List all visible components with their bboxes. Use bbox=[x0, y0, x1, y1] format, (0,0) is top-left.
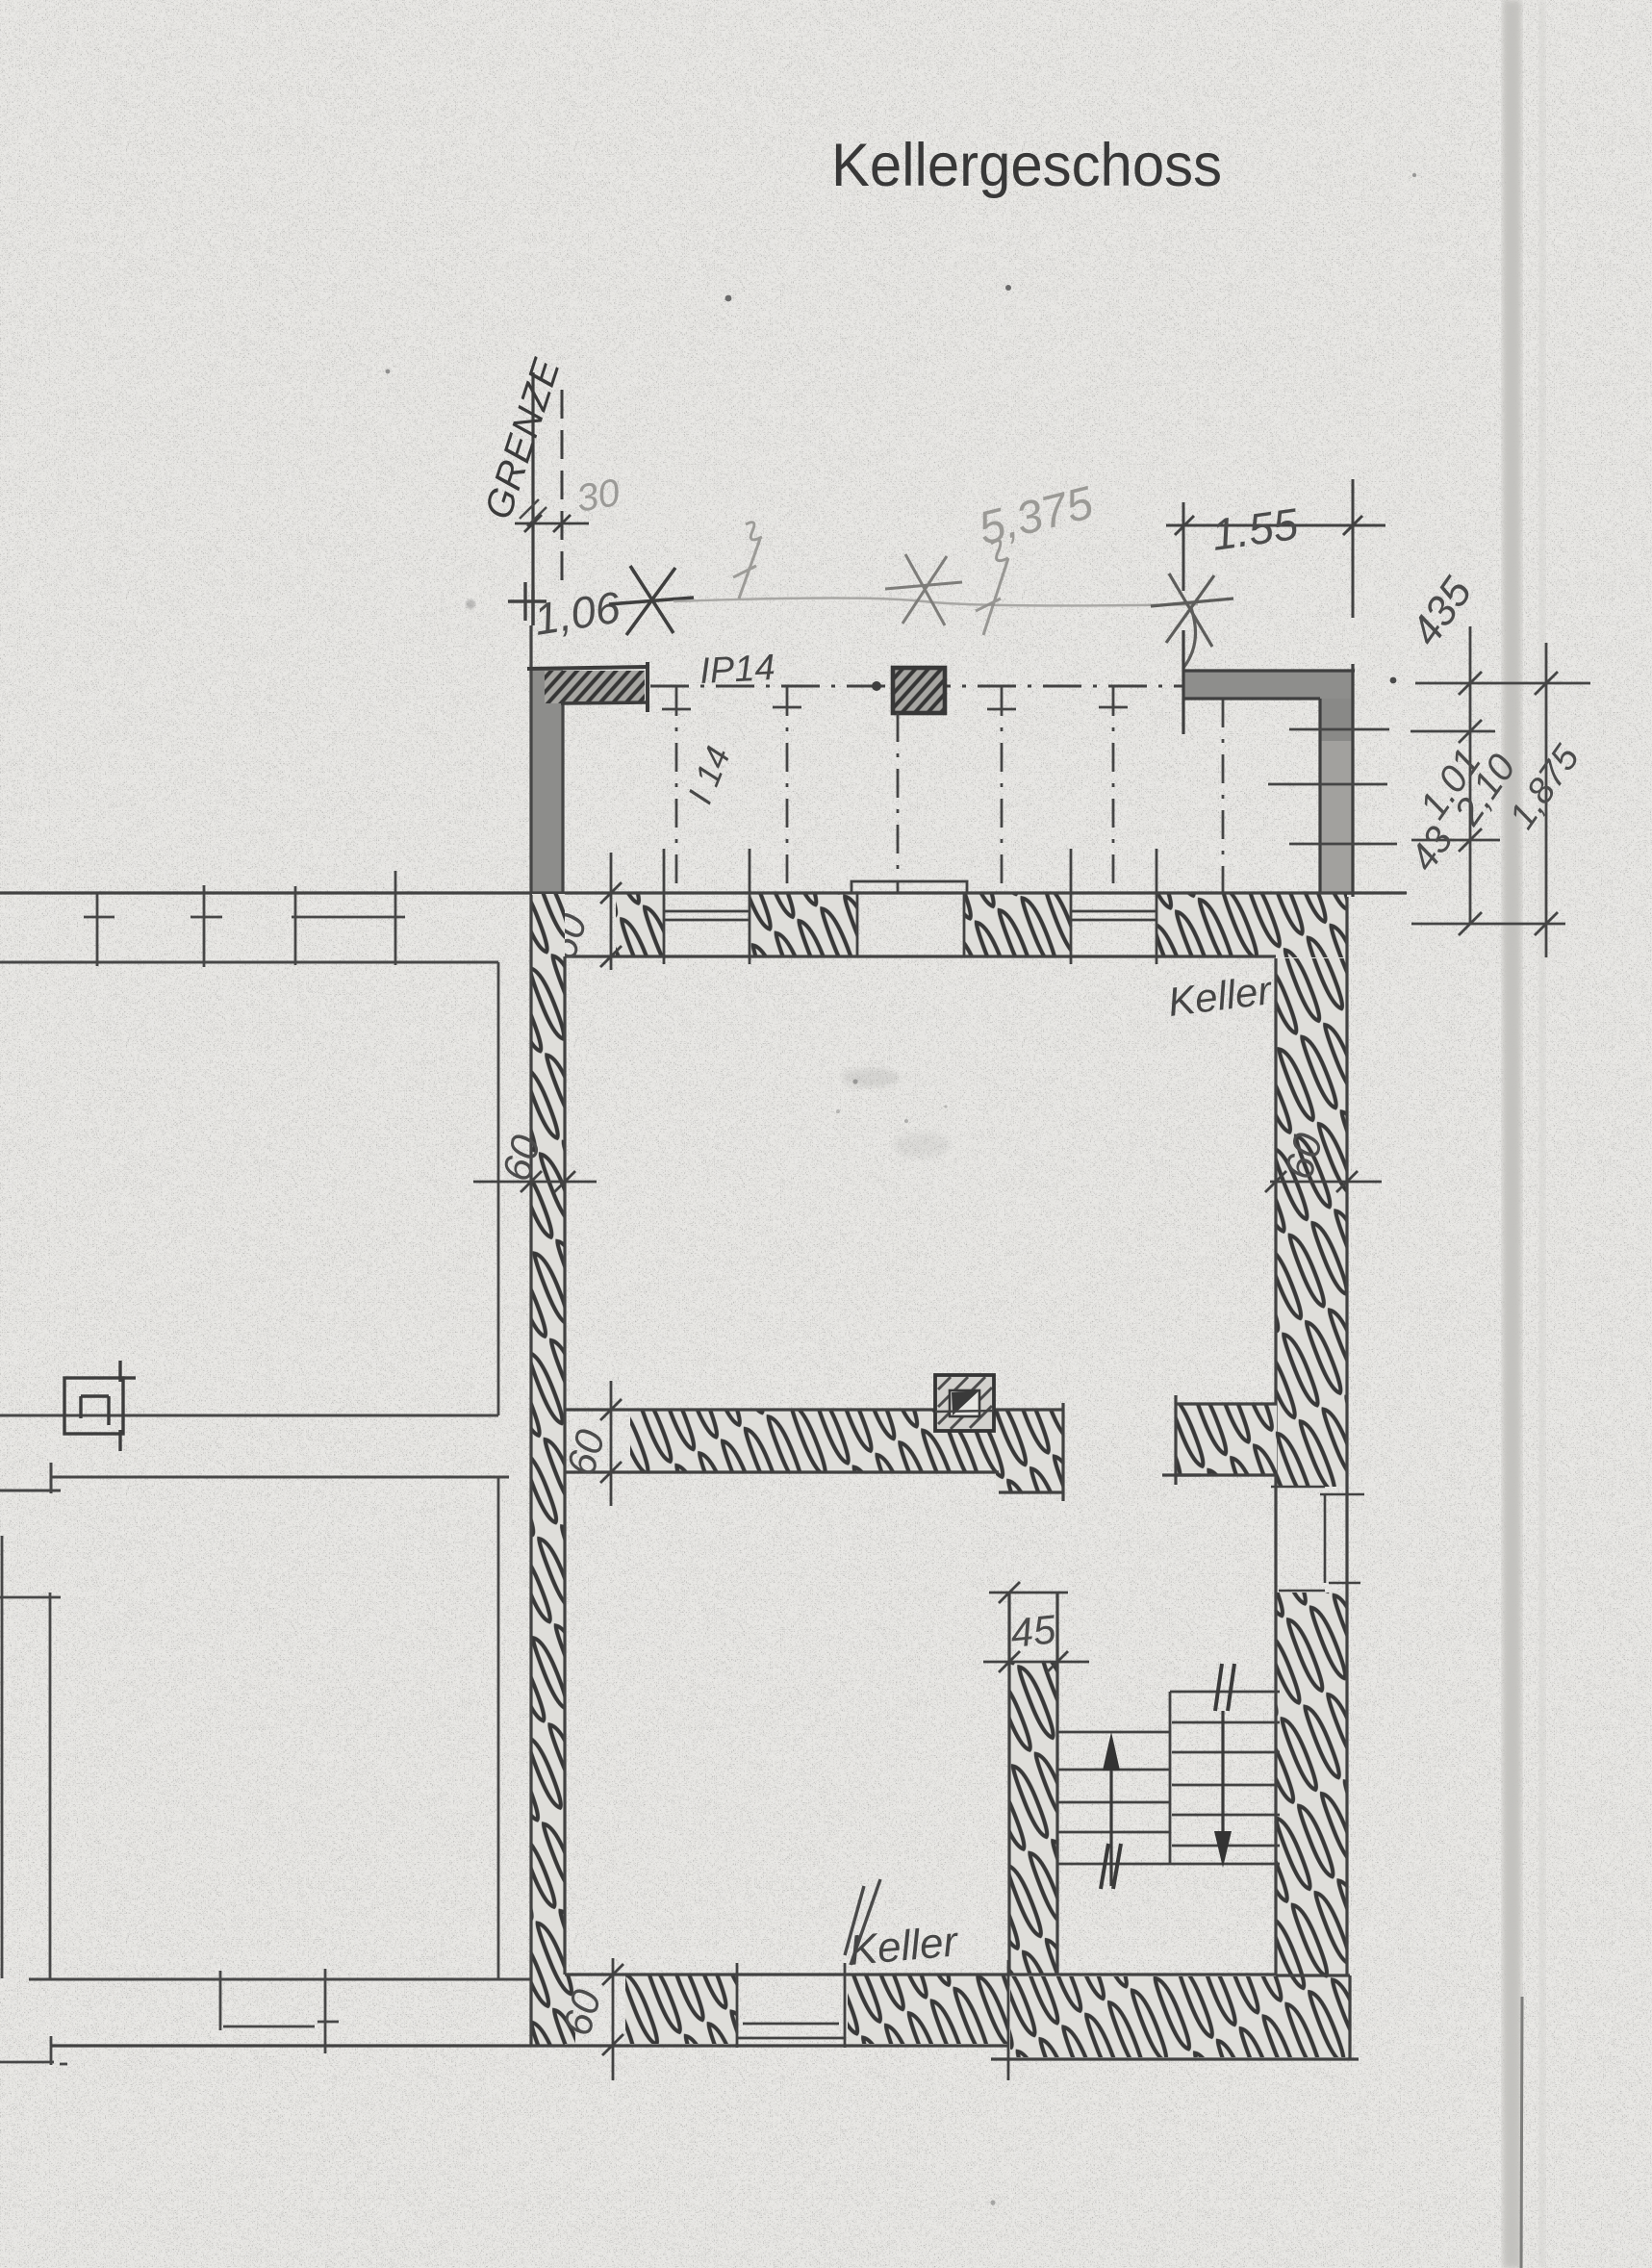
svg-text:45: 45 bbox=[1008, 1606, 1058, 1656]
svg-text:Kellergeschoss: Kellergeschoss bbox=[831, 132, 1222, 199]
svg-text:30: 30 bbox=[573, 471, 623, 521]
svg-text:Keller: Keller bbox=[848, 1918, 962, 1975]
